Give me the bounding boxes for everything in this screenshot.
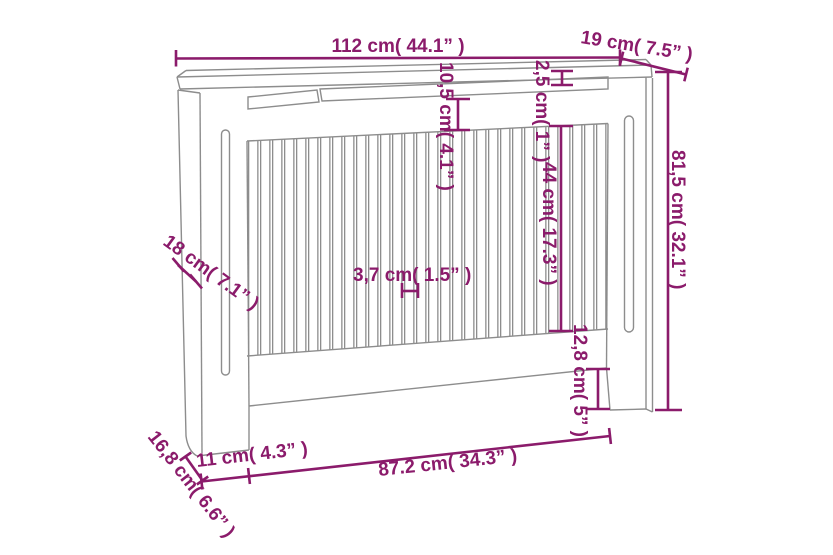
dim-label-slat-spacing: 3,7 cm( 1.5” ) — [353, 265, 471, 286]
dim-label-overall-height: 81,5 cm( 32.1” ) — [667, 150, 688, 289]
dim-label-slat-height: 44 cm( 17.3” ) — [538, 162, 559, 286]
dim-label-top-rail-height: 10,5 cm( 4.1” ) — [435, 62, 456, 191]
radiator-cover-technical-drawing: 112 cm( 44.1” ) 19 cm( 7.5” ) 10,5 cm( 4… — [0, 0, 833, 555]
dim-label-top-thickness: 2,5 cm( 1” ) — [531, 60, 552, 162]
dim-label-cutout-height: 12,8 cm( 5” ) — [569, 324, 590, 437]
right-foot-bottom-edge — [610, 409, 646, 410]
dim-label-overall-width: 112 cm( 44.1” ) — [331, 36, 464, 57]
